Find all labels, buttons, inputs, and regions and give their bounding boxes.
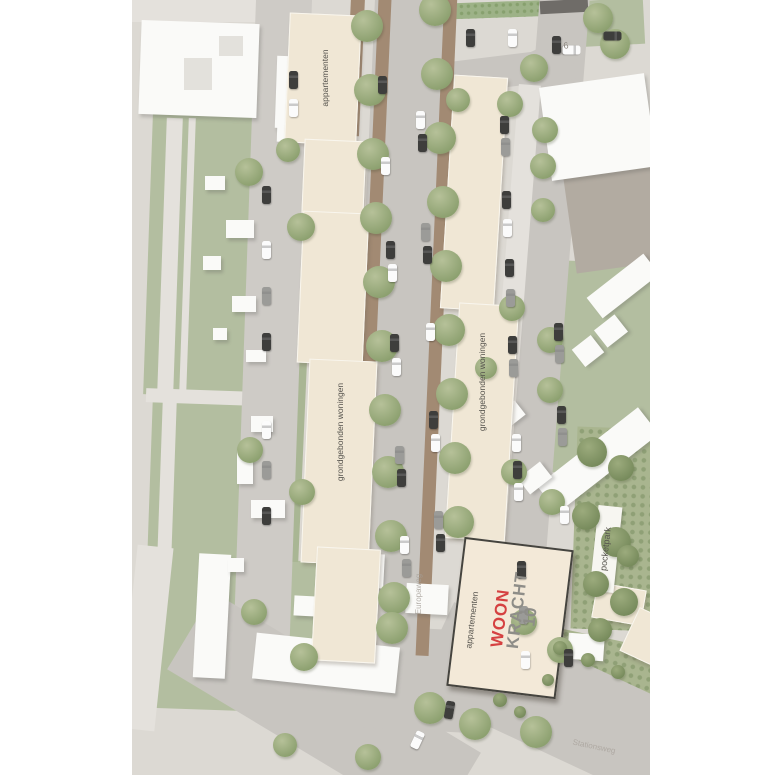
car xyxy=(418,134,427,152)
tree-icon xyxy=(376,612,408,644)
tree-icon xyxy=(446,88,470,112)
shed xyxy=(228,558,244,572)
car xyxy=(555,345,564,363)
car xyxy=(262,186,271,204)
car xyxy=(508,336,517,354)
tree-icon xyxy=(421,58,453,90)
tree-icon xyxy=(542,674,554,686)
tree-icon xyxy=(588,618,612,642)
tree-icon xyxy=(581,653,595,667)
label-grondgebonden-woningen-right: grondgebonden woningen xyxy=(478,333,487,431)
tree-icon xyxy=(610,588,638,616)
dark-roof-building xyxy=(540,0,589,14)
car xyxy=(400,536,409,554)
tree-icon xyxy=(537,377,563,403)
car xyxy=(397,469,406,487)
car xyxy=(262,241,271,259)
car xyxy=(554,323,563,341)
tree-icon xyxy=(572,502,600,530)
car xyxy=(431,434,440,452)
car xyxy=(564,649,573,667)
car xyxy=(421,223,430,241)
tree-icon xyxy=(430,250,462,282)
tree-icon xyxy=(369,394,401,426)
tree-icon xyxy=(520,54,548,82)
tree-icon xyxy=(583,3,613,33)
tree-icon xyxy=(611,665,625,679)
new-building xyxy=(311,546,381,663)
car xyxy=(503,219,512,237)
car xyxy=(262,421,271,439)
tree-icon xyxy=(442,506,474,538)
tree-icon xyxy=(276,138,300,162)
shed xyxy=(232,296,256,312)
car xyxy=(289,71,298,89)
tree-icon xyxy=(355,744,381,770)
car xyxy=(429,411,438,429)
shed xyxy=(205,176,225,190)
page-margin-right xyxy=(650,0,775,775)
car xyxy=(514,483,523,501)
car xyxy=(262,507,271,525)
car xyxy=(262,333,271,351)
tree-icon xyxy=(427,186,459,218)
car xyxy=(426,323,435,341)
car xyxy=(378,76,387,94)
tree-icon xyxy=(531,198,555,222)
tree-icon xyxy=(235,158,263,186)
tree-icon xyxy=(617,545,639,567)
car xyxy=(521,651,530,669)
tree-icon xyxy=(514,706,526,718)
shed xyxy=(405,583,449,615)
car xyxy=(289,99,298,117)
car xyxy=(395,446,404,464)
tree-icon xyxy=(351,10,383,42)
tree-icon xyxy=(497,91,523,117)
top-road-band xyxy=(130,0,258,22)
tree-icon xyxy=(287,213,315,241)
roof-detail xyxy=(219,36,243,56)
tree-icon xyxy=(439,442,471,474)
car xyxy=(509,359,518,377)
existing-building xyxy=(193,553,231,679)
label-logo-10: 10 xyxy=(520,607,539,628)
tree-icon xyxy=(241,599,267,625)
car xyxy=(436,534,445,552)
tree-icon xyxy=(414,692,446,724)
site-plan-map: appartementengrondgebonden woningengrond… xyxy=(0,0,775,775)
car xyxy=(423,246,432,264)
car xyxy=(560,506,569,524)
shed xyxy=(213,328,227,340)
tree-icon xyxy=(459,708,491,740)
tree-icon xyxy=(583,571,609,597)
car xyxy=(500,116,509,134)
car xyxy=(558,428,567,446)
tree-icon xyxy=(290,643,318,671)
car xyxy=(262,287,271,305)
car xyxy=(513,461,522,479)
shed xyxy=(203,256,221,270)
car xyxy=(603,32,621,41)
tree-icon xyxy=(608,455,634,481)
tree-icon xyxy=(436,378,468,410)
label-appartementen-north: appartementen xyxy=(321,49,330,106)
tree-icon xyxy=(532,117,558,143)
tree-icon xyxy=(378,582,410,614)
car xyxy=(466,29,475,47)
tree-icon xyxy=(360,202,392,234)
shed xyxy=(246,350,266,362)
tree-icon xyxy=(424,122,456,154)
car xyxy=(552,36,561,54)
tree-icon xyxy=(520,716,552,748)
car xyxy=(262,461,271,479)
tree-icon xyxy=(493,693,507,707)
car xyxy=(512,434,521,452)
car xyxy=(502,191,511,209)
tree-icon xyxy=(577,437,607,467)
car xyxy=(434,511,443,529)
car xyxy=(388,264,397,282)
tree-icon xyxy=(289,479,315,505)
label-marking-6: 6 xyxy=(563,41,569,51)
car xyxy=(557,406,566,424)
car xyxy=(416,111,425,129)
car xyxy=(390,334,399,352)
label-street-name-center: Europaweg xyxy=(415,574,423,614)
car xyxy=(392,358,401,376)
site-plan-canvas: appartementengrondgebonden woningengrond… xyxy=(0,0,775,775)
car xyxy=(505,259,514,277)
shed xyxy=(226,220,254,238)
car xyxy=(508,29,517,47)
car xyxy=(381,157,390,175)
page-margin-left xyxy=(0,0,132,775)
tree-icon xyxy=(273,733,297,757)
roof-detail xyxy=(184,58,212,90)
car xyxy=(506,289,515,307)
tree-icon xyxy=(530,153,556,179)
tree-icon xyxy=(433,314,465,346)
car xyxy=(402,559,411,577)
car xyxy=(386,241,395,259)
tree-icon xyxy=(237,437,263,463)
label-grondgebonden-woningen-left: grondgebonden woningen xyxy=(336,383,345,481)
car xyxy=(501,138,510,156)
